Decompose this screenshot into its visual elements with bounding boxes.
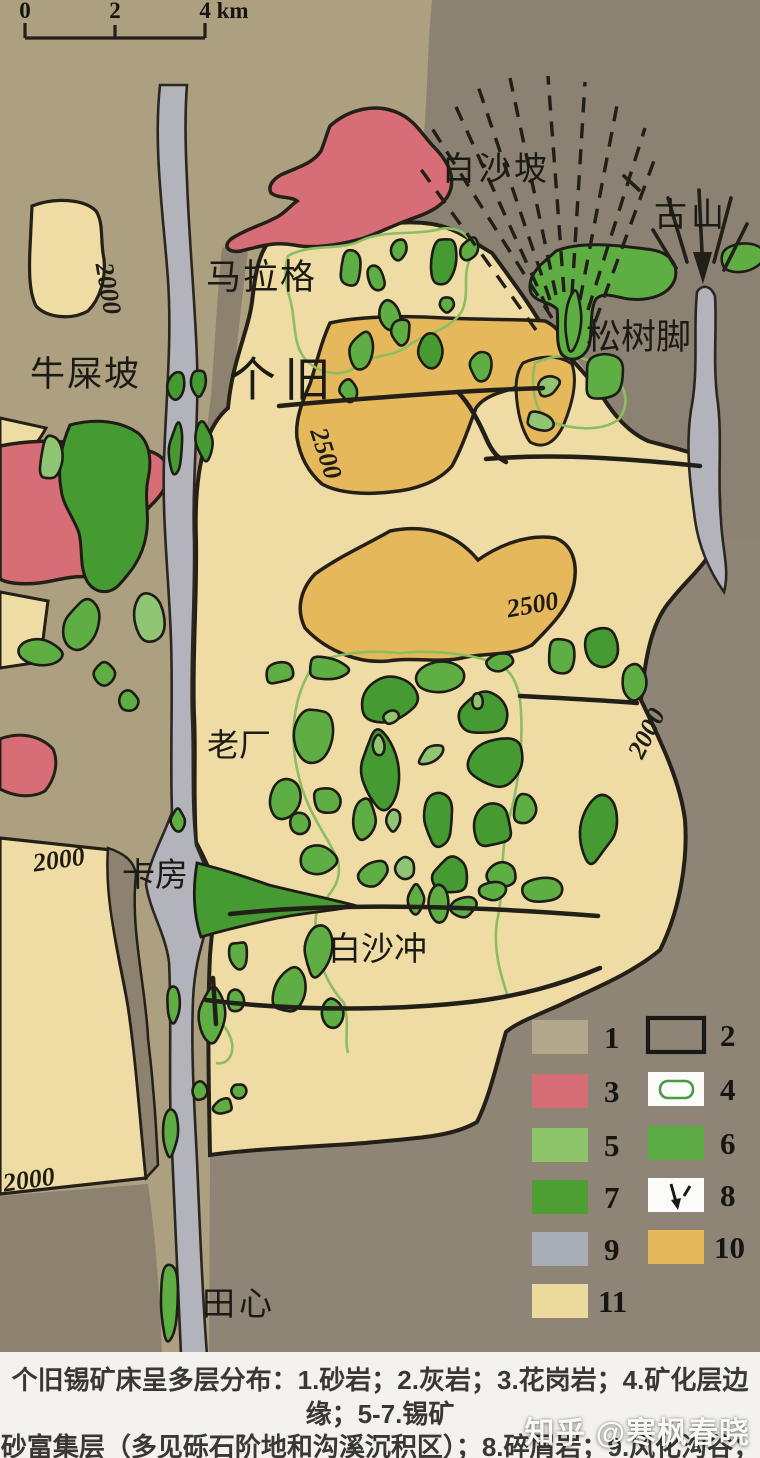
tin-ore-blob — [193, 1081, 208, 1099]
legend-swatch-10 — [648, 1230, 704, 1264]
tin-ore-blob — [479, 882, 506, 900]
tin-ore-blob — [373, 735, 385, 755]
legend-swatch-4 — [648, 1072, 704, 1106]
granite-region-small — [0, 735, 56, 796]
geological-map-page: 白沙坡 古山 马拉格 松树脚 牛屎坡 个旧 老厂 卡房 白沙冲 田心 2000 … — [0, 0, 760, 1458]
tin-ore-blob — [314, 788, 340, 812]
place-label-kafang: 卡房 — [122, 857, 188, 894]
tin-ore-blob — [322, 999, 344, 1028]
tin-ore-blob — [383, 710, 399, 723]
place-label-songshujiao: 松树脚 — [586, 318, 691, 357]
legend-swatch-11 — [532, 1284, 588, 1318]
legend-number-10: 10 — [714, 1230, 745, 1265]
tin-ore-blob — [549, 639, 574, 673]
tin-ore-blob — [294, 710, 333, 763]
watermark: 知乎 @寒枫春晓 — [524, 1408, 750, 1452]
cream-hill-topleft — [30, 200, 105, 316]
scale-label-4km: 4 km — [199, 0, 248, 23]
legend-number-3: 3 — [604, 1074, 620, 1109]
tin-ore-blob — [587, 354, 623, 398]
legend-number-5: 5 — [604, 1128, 620, 1163]
tin-ore-blob — [228, 990, 244, 1012]
legend-number-1: 1 — [604, 1020, 620, 1055]
place-label-laochang: 老厂 — [207, 727, 271, 763]
scale-label-0: 0 — [19, 0, 31, 23]
dark-block-bottomleft — [0, 1184, 162, 1355]
tin-ore-blob — [353, 799, 376, 840]
tin-ore-blob — [167, 987, 179, 1024]
place-label-gejiu: 个旧 — [229, 355, 339, 407]
tin-ore-blob — [267, 662, 294, 683]
legend-number-6: 6 — [720, 1126, 736, 1161]
tin-ore-blob — [391, 240, 407, 261]
legend-number-7: 7 — [604, 1180, 620, 1215]
place-label-baishapo: 白沙坡 — [442, 151, 550, 188]
legend-swatch-6 — [648, 1126, 704, 1160]
tin-ore-blob — [386, 810, 400, 832]
tin-ore-blob — [428, 885, 448, 923]
legend-number-4: 4 — [720, 1072, 736, 1107]
tin-ore-blob — [161, 1265, 178, 1342]
legend-number-2: 2 — [720, 1018, 736, 1053]
tin-ore-blob — [416, 662, 464, 693]
place-label-tianxin: 田心 — [202, 1287, 276, 1323]
tin-ore-blob — [472, 693, 483, 709]
legend-swatch-1 — [532, 1020, 588, 1054]
scale-label-2: 2 — [109, 0, 121, 23]
tin-ore-blob — [585, 628, 618, 667]
tin-ore-blob — [191, 371, 206, 397]
legend-swatch-3 — [532, 1074, 588, 1108]
tin-ore-blob — [341, 250, 361, 285]
tin-ore-blob — [94, 662, 115, 686]
place-label-niushipo: 牛屎坡 — [30, 355, 141, 394]
tin-ore-blob — [623, 664, 647, 701]
place-label-baishachong: 白沙冲 — [328, 931, 427, 968]
map-canvas: 白沙坡 古山 马拉格 松树脚 牛屎坡 个旧 老厂 卡房 白沙冲 田心 2000 … — [0, 0, 760, 1355]
tin-ore-blob — [290, 813, 310, 834]
tin-ore-blob — [167, 372, 184, 400]
place-label-gushan: 古山 — [654, 197, 728, 234]
legend-swatch-9 — [532, 1232, 588, 1266]
tin-ore-blob — [522, 878, 562, 902]
tin-ore-blob — [231, 1085, 246, 1099]
place-label-malage: 马拉格 — [206, 258, 317, 297]
legend-swatch-8 — [648, 1178, 704, 1212]
tin-ore-blob — [474, 803, 511, 846]
legend-number-9: 9 — [604, 1232, 620, 1267]
tin-ore-blob — [418, 333, 442, 368]
tin-ore-blob — [40, 436, 63, 479]
tin-ore-blob — [440, 297, 454, 312]
tin-ore-blob — [722, 243, 760, 272]
legend-number-8: 8 — [720, 1178, 736, 1213]
tin-ore-blob — [514, 794, 536, 823]
legend-number-11: 11 — [598, 1284, 627, 1319]
tin-ore-blob — [395, 857, 414, 879]
legend-swatch-7 — [532, 1180, 588, 1214]
legend-swatch-5 — [532, 1128, 588, 1162]
